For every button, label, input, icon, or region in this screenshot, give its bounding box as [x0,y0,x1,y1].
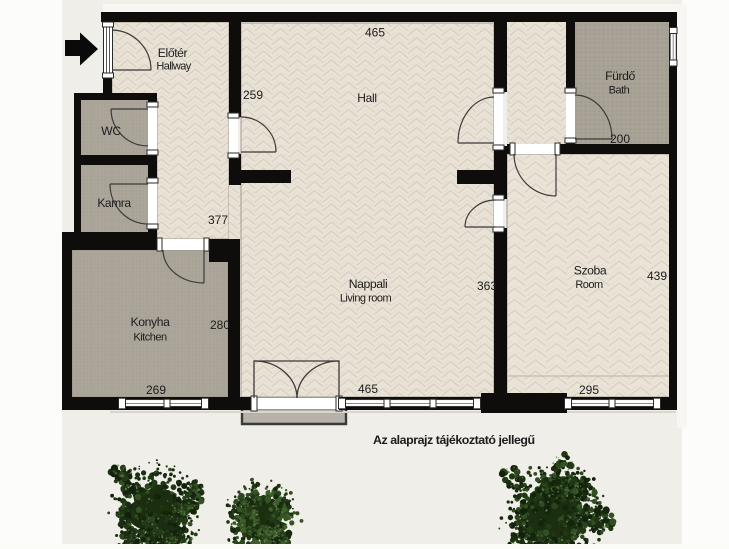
svg-text:Hallway: Hallway [156,61,191,73]
svg-text:269: 269 [146,383,166,397]
svg-text:200: 200 [610,132,630,146]
svg-text:Szoba: Szoba [574,264,607,278]
svg-text:295: 295 [579,383,599,397]
svg-text:Konyha: Konyha [131,315,171,329]
svg-text:363: 363 [477,279,497,293]
svg-text:Room: Room [575,279,603,291]
svg-text:259: 259 [243,88,263,102]
svg-text:Kitchen: Kitchen [133,332,167,344]
svg-text:Előtér: Előtér [158,46,188,60]
svg-text:439: 439 [647,269,667,283]
svg-text:465: 465 [365,26,385,40]
svg-text:Az alaprajz tájékoztató jelleg: Az alaprajz tájékoztató jellegű [373,433,535,447]
svg-text:Living room: Living room [340,293,392,305]
svg-text:Fürdő: Fürdő [605,69,635,83]
svg-text:465: 465 [358,382,378,396]
svg-text:Hall: Hall [357,91,376,105]
svg-text:WC: WC [101,124,121,138]
svg-text:280: 280 [210,318,230,332]
svg-text:Kamra: Kamra [97,196,131,210]
svg-text:377: 377 [208,213,228,227]
svg-text:Bath: Bath [609,85,630,97]
svg-text:Nappali: Nappali [349,277,388,291]
